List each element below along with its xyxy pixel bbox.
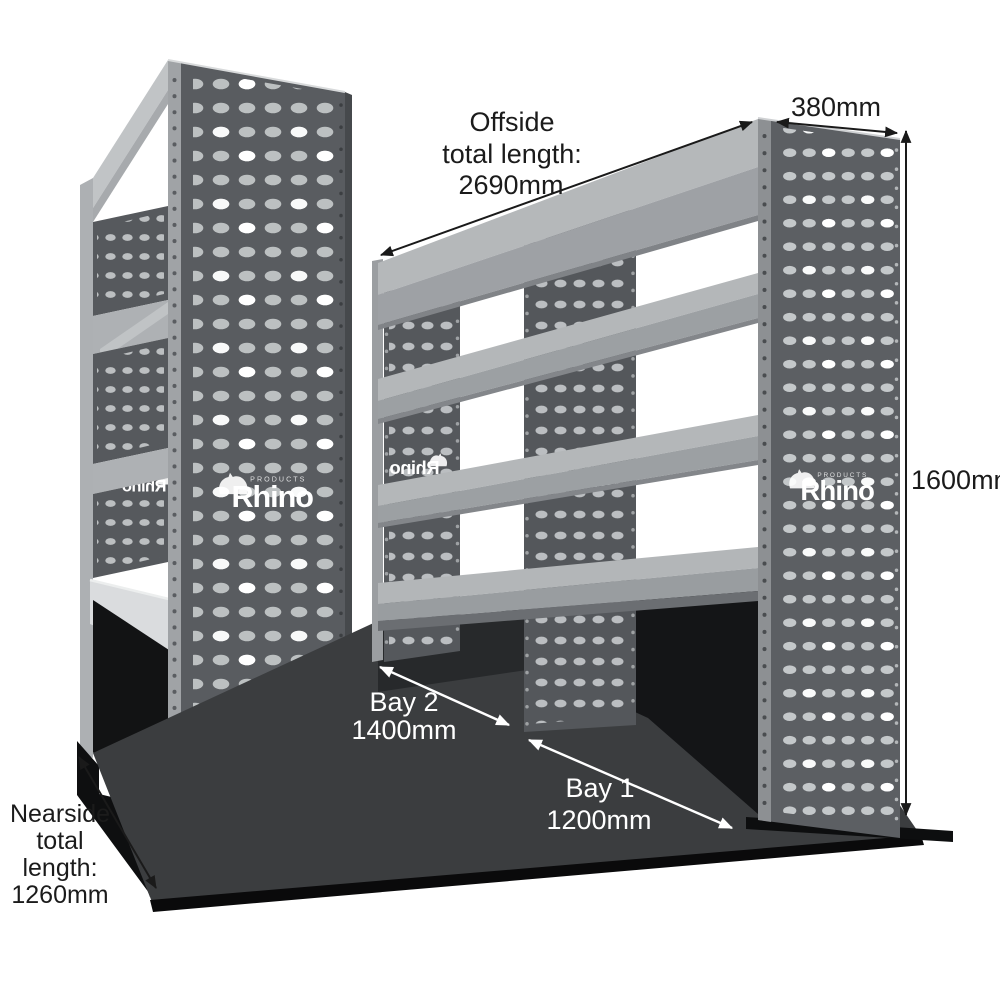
dim-height: 1600mm [906, 131, 1000, 815]
offside-length-line1: Offside [469, 107, 554, 137]
panel-perforations [97, 212, 164, 310]
top-slab-edge [93, 90, 168, 222]
bay1-value: 1200mm [546, 805, 651, 835]
bay1-label: Bay 1 [565, 773, 634, 803]
end-panel: PRODUCTS Rhino [758, 118, 900, 838]
top-slab-face [93, 60, 168, 208]
nearside-length-line3: length: [22, 854, 97, 882]
bay2-value: 1400mm [351, 715, 456, 745]
nearside-length-line1: Nearside [10, 800, 110, 828]
left-edge-strip [80, 178, 93, 758]
offside-length-line3: 2690mm [458, 170, 563, 200]
bay2-label: Bay 2 [369, 687, 438, 717]
rhino-logo: PRODUCTS Rhino [219, 473, 313, 514]
rhino-wordmark: Rhino [800, 475, 874, 506]
nearside-length-line4: 1260mm [11, 881, 108, 909]
rhino-wordmark: Rhino [231, 480, 313, 514]
diagram-canvas: Rhino PRODUCTS Rhino [0, 0, 1000, 1000]
nearside-length-line2: total [36, 827, 83, 855]
height-value: 1600mm [911, 465, 1000, 495]
depth-value: 380mm [791, 92, 881, 122]
rhino-logo: PRODUCTS Rhino [789, 469, 874, 506]
offside-length-line2: total length: [442, 139, 582, 169]
van-racking-dimension-diagram: Rhino PRODUCTS Rhino [0, 0, 1000, 1000]
panel-perforations [97, 344, 164, 458]
